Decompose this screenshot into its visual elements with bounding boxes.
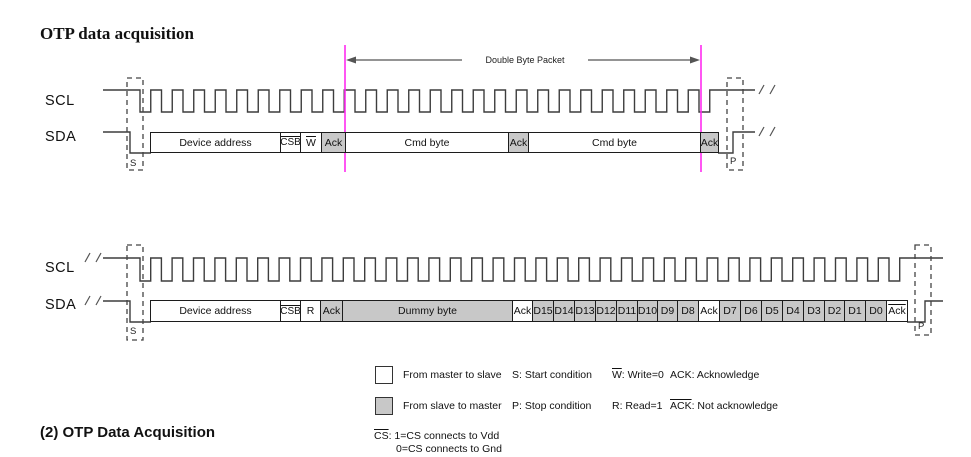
sda-segment: R (300, 300, 321, 322)
break-mark-icon (759, 127, 775, 136)
sda-segment: Ack (886, 300, 908, 322)
sda-segment: Ack (321, 132, 346, 153)
legend-ack: ACK: Acknowledge (670, 369, 759, 381)
sda-segment: D6 (740, 300, 762, 322)
break-mark-icon (759, 85, 775, 94)
sda-segment: D0 (865, 300, 887, 322)
legend-write: W: Write=0 (612, 369, 664, 381)
slave-to-master-swatch (375, 397, 393, 415)
sda-signal-label: SDA (45, 297, 76, 313)
stop-marker: P (730, 156, 736, 167)
legend-master-label: From master to slave (403, 369, 502, 381)
sda-segment: CSB (280, 132, 301, 153)
sda-segment: D10 (637, 300, 658, 322)
sda-segment: Ack (700, 132, 719, 153)
sda-waveform-tail (718, 132, 755, 153)
figure-caption: (2) OTP Data Acquisition (40, 424, 215, 441)
legend-nack: ACK: Not acknowledge (670, 400, 778, 412)
sda-segment: Dummy byte (342, 300, 513, 322)
legend-stop-condition: P: Stop condition (512, 400, 591, 412)
sda-segment: D12 (595, 300, 617, 322)
write-term: W (612, 369, 622, 381)
waveform-canvas (0, 0, 971, 457)
sda-segment: Device address (150, 300, 281, 322)
sda-segment: D3 (803, 300, 825, 322)
scl-waveform (103, 90, 755, 112)
packet-arrow-left-head-icon (346, 57, 356, 64)
scl-signal-label: SCL (45, 260, 75, 276)
sda-segment: Device address (150, 132, 281, 153)
nack-term: ACK (670, 400, 692, 412)
sda-segment: Ack (512, 300, 533, 322)
master-to-slave-swatch (375, 366, 393, 384)
legend-slave-label: From slave to master (403, 400, 502, 412)
sda-segment: D8 (677, 300, 699, 322)
sda-segment: CSB (280, 300, 301, 322)
sda-segment: Ack (698, 300, 720, 322)
stop-marker: P (918, 321, 924, 332)
packet-span-label: Double Byte Packet (465, 55, 585, 65)
packet-arrow-right-head-icon (690, 57, 700, 64)
otp-timing-diagram-page: OTP data acquisition (2) OTP Data Acquis… (0, 0, 971, 457)
page-title: OTP data acquisition (40, 24, 194, 44)
break-mark-icon (85, 253, 101, 262)
cs-note-line1: CS: 1=CS connects to Vdd (374, 430, 499, 442)
sda-segment: Ack (320, 300, 343, 322)
sda-segment: D2 (824, 300, 845, 322)
sda-waveform-tail (907, 301, 943, 322)
sda-segment: D9 (657, 300, 678, 322)
sda-segment: D5 (761, 300, 783, 322)
break-mark-icon (85, 296, 101, 305)
sda-segment: D14 (553, 300, 575, 322)
sda-segment: D4 (782, 300, 804, 322)
start-marker: S (130, 326, 136, 337)
sda-segment: Cmd byte (345, 132, 509, 153)
start-marker: S (130, 158, 136, 169)
scl-signal-label: SCL (45, 93, 75, 109)
sda-segment: Cmd byte (528, 132, 701, 153)
scl-waveform (103, 258, 943, 281)
sda-segment: Ack (508, 132, 529, 153)
sda-signal-label: SDA (45, 129, 76, 145)
cs-term: CS (374, 430, 389, 442)
write-rest: : Write=0 (622, 369, 664, 381)
cs-rest: : 1=CS connects to Vdd (389, 430, 500, 442)
sda-segment: D7 (719, 300, 741, 322)
sda-segment: D1 (844, 300, 866, 322)
legend-read: R: Read=1 (612, 400, 663, 412)
nack-rest: : Not acknowledge (692, 400, 778, 412)
cs-note-line2: 0=CS connects to Gnd (396, 443, 502, 455)
legend-start-condition: S: Start condition (512, 369, 592, 381)
sda-segment: D11 (616, 300, 638, 322)
sda-segment: W (300, 132, 322, 153)
sda-segment: D15 (532, 300, 554, 322)
sda-segment: D13 (574, 300, 596, 322)
